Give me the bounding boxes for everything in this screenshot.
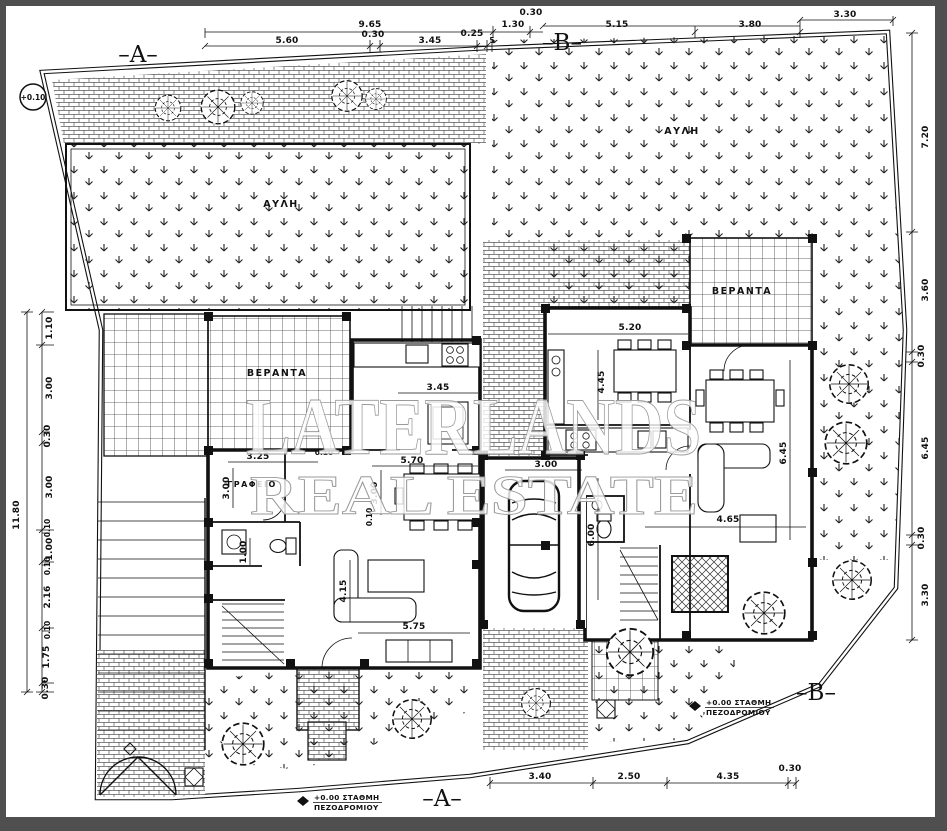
section-a-bottom: –A–: [422, 786, 462, 812]
terrace-left: [104, 314, 208, 456]
dim-int-415: 4.15: [339, 579, 349, 602]
veranda-right: ΒΕΡΑΝΤΑ: [690, 238, 812, 345]
dim-right-030b: 0.30: [917, 526, 927, 549]
watermark: LATERLANDS REAL ESTATE: [246, 381, 701, 527]
dim-right-360: 3.60: [921, 278, 931, 301]
dim-right-030a: 0.30: [917, 344, 927, 367]
watermark-line2: REAL ESTATE: [250, 465, 698, 527]
yard-right-label: ΑΥΛΗ: [664, 126, 700, 137]
dim-bottom-030: 0.30: [778, 764, 801, 774]
dim-left-1180: 11.80: [12, 500, 22, 529]
floor-plan-drawing: ΑΥΛΗ ΑΥΛΗ ΒΕΡΑΝΤΑ ΒΕΡΑΝΤΑ: [6, 6, 935, 817]
dim-top-965: 9.65: [358, 20, 381, 30]
veranda-left-label: ΒΕΡΑΝΤΑ: [247, 368, 307, 379]
dim-left-030b: 0.30: [41, 676, 51, 699]
dim-int-520: 5.20: [618, 323, 641, 333]
dim-left-216: 2.16: [43, 585, 53, 608]
dim-top-330: 3.30: [833, 10, 856, 20]
section-b-right: –B–: [796, 680, 836, 706]
dim-top-130: 1.30: [501, 20, 524, 30]
plot-level: +0.10: [20, 84, 46, 110]
yard-left: ΑΥΛΗ: [66, 144, 470, 310]
dim-right-720: 7.20: [921, 125, 931, 148]
sidewalk-right-line2: ΠΕΖΟΔΡΟΜΙΟΥ: [706, 708, 771, 717]
dim-top-030a: 0.30: [361, 30, 384, 40]
dim-left-110: 1.10: [45, 316, 55, 339]
dim-left-010a: 0.10: [43, 519, 52, 538]
sidewalk-right-line1: +0.00 ΣΤΑΘΜΗ: [706, 698, 771, 707]
section-b-top: –B–: [542, 30, 582, 56]
dim-top-345: 3.45: [418, 36, 441, 46]
section-a-top: –A–: [118, 42, 158, 68]
dim-right-645: 6.45: [921, 436, 931, 459]
dim-top-560: 5.60: [275, 36, 298, 46]
shaft-hatch: [672, 556, 728, 612]
dim-top-380: 3.80: [738, 20, 761, 30]
dim-bottom-435: 4.35: [716, 772, 739, 782]
plot-level-value: +0.10: [21, 93, 46, 102]
dim-int-100: 1.00: [239, 540, 249, 563]
dim-left-010b: 0.10: [43, 557, 52, 576]
sidewalk-level-left: +0.00 ΣΤΑΘΜΗ ΠΕΖΟΔΡΟΜΙΟΥ: [297, 793, 382, 812]
dim-left-300a: 3.00: [45, 376, 55, 399]
watermark-line1: LATERLANDS: [246, 381, 701, 472]
veranda-right-label: ΒΕΡΑΝΤΑ: [712, 286, 772, 297]
dim-top-5: 5: [489, 36, 494, 45]
blueprint-page: ΑΥΛΗ ΑΥΛΗ ΒΕΡΑΝΤΑ ΒΕΡΑΝΤΑ: [0, 0, 947, 831]
dim-right-330: 3.30: [921, 583, 931, 606]
sidewalk-left-line1: +0.00 ΣΤΑΘΜΗ: [314, 793, 379, 802]
dim-left-010c: 0.10: [43, 621, 52, 640]
dim-top-030b: 0.30: [519, 8, 542, 18]
dim-left-300b: 3.00: [45, 475, 55, 498]
dim-int-465: 4.65: [716, 515, 739, 525]
dim-int-575: 5.75: [402, 622, 425, 632]
sidewalk-left-line2: ΠΕΖΟΔΡΟΜΙΟΥ: [314, 803, 379, 812]
dim-bottom-250: 2.50: [617, 772, 640, 782]
dim-top-515: 5.15: [605, 20, 628, 30]
dim-bottom-340: 3.40: [528, 772, 551, 782]
dim-top-025: 0.25: [460, 29, 483, 39]
dim-left-175: 1.75: [42, 645, 52, 668]
dim-int-645: 6.45: [779, 441, 789, 464]
dim-left-030a: 0.30: [43, 424, 53, 447]
yard-left-label: ΑΥΛΗ: [263, 199, 299, 210]
